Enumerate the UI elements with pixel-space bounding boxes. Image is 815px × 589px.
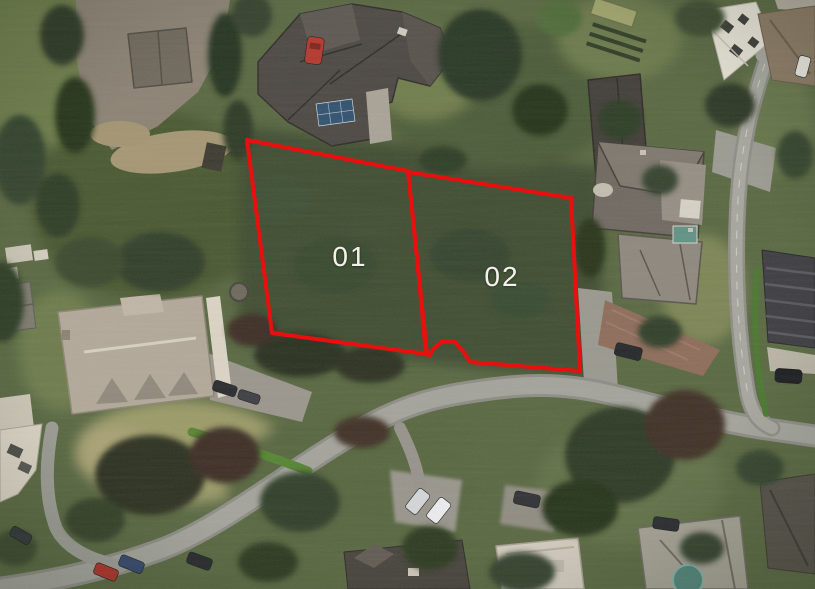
aerial-photo: 0102 <box>0 0 815 589</box>
plot-01-label: 01 <box>332 241 367 272</box>
photo-grain <box>0 0 815 589</box>
plot-02-label: 02 <box>484 261 519 292</box>
